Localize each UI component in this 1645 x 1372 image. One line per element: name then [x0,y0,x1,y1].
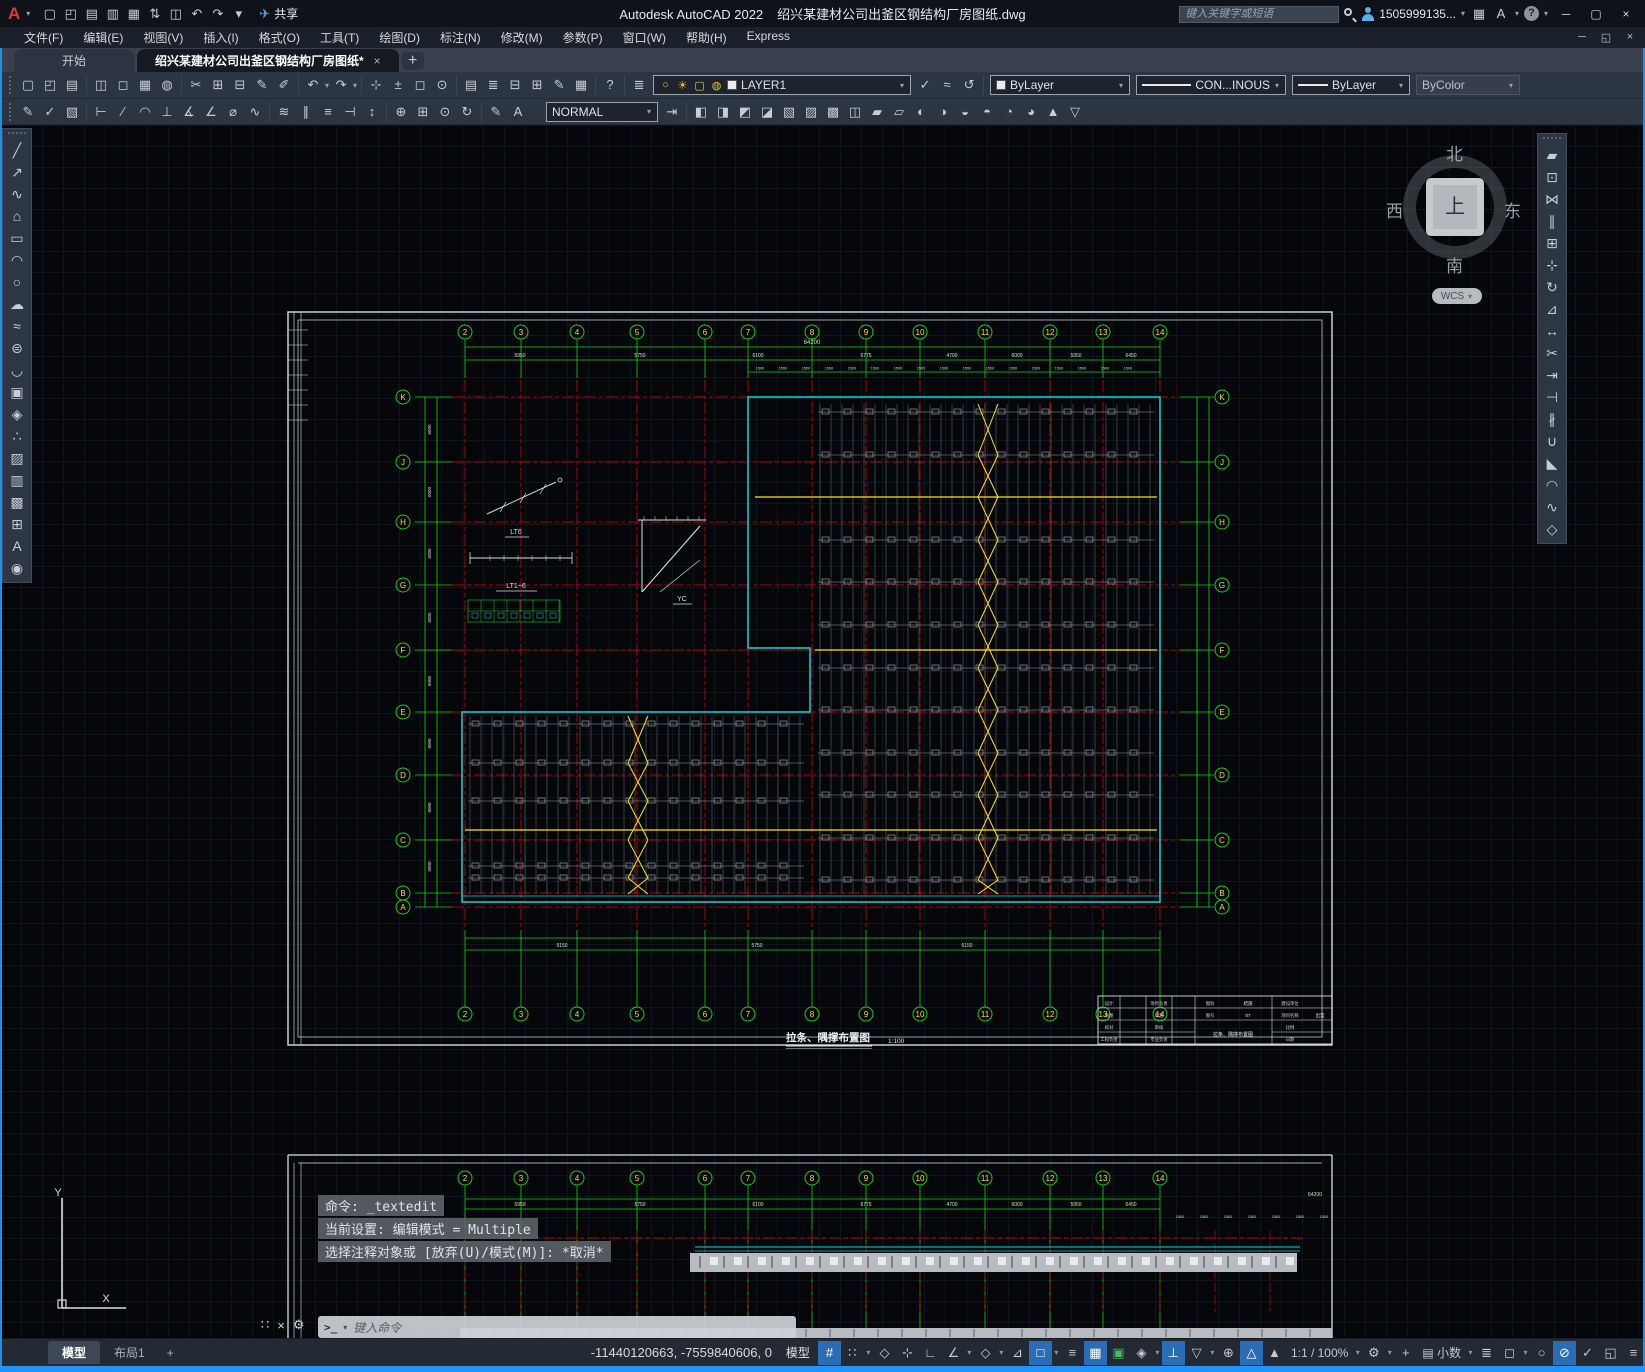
svg-text:4: 4 [575,328,580,337]
status-snap-caret-icon[interactable]: ▾ [864,1348,873,1357]
status-transparency-icon[interactable]: ▦ [1084,1341,1107,1365]
quick-calc-icon[interactable]: ▦ [570,75,592,95]
viewcube-west-label[interactable]: 西 [1386,197,1403,222]
layer-delete-icon[interactable]: ◔ [998,102,1020,122]
status-workspace-switching-caret-icon[interactable]: ▾ [1385,1348,1394,1357]
dim-arc-length-icon[interactable]: ◠ [134,102,156,122]
publish-icon[interactable]: ▦ [134,75,156,95]
break-at-point-icon[interactable]: ⊣ [1539,386,1565,408]
dim-quick-icon[interactable]: ≋ [273,102,295,122]
svg-text:3: 3 [519,328,524,337]
command-settings-icon[interactable]: ⚙ [293,1317,305,1333]
tab-start[interactable]: 开始 [14,49,134,72]
lineweight-sample [1298,84,1328,86]
tab-close-icon[interactable]: × [374,54,381,68]
tab-layout1[interactable]: 布局1 [100,1341,159,1364]
point-icon[interactable]: ∴ [4,425,30,447]
properties-icon[interactable]: ▤ [460,75,482,95]
titlebar: A▾ ▢◰▤▥▦⇅◫↶↷▾ ✈共享 Autodesk AutoCAD 2022绍… [0,0,1645,27]
search-box[interactable] [1179,4,1339,23]
svg-text:1500: 1500 [917,367,925,371]
svg-text:14: 14 [1156,328,1165,337]
status-object-snap-caret-icon[interactable]: ▾ [1052,1348,1061,1357]
plot-preview-icon[interactable]: ◻ [112,75,134,95]
change-to-current-layer-icon[interactable]: ◪ [756,102,778,122]
save-as-icon[interactable]: ▥ [103,4,122,24]
dim-adjust-icon[interactable]: ↕ [361,102,383,122]
svg-text:13: 13 [1099,1010,1108,1019]
plot-icon[interactable]: ◫ [90,75,112,95]
dim-jogged-icon[interactable]: ∿ [244,102,266,122]
dim-baseline-icon[interactable]: ≡ [317,102,339,122]
svg-text:4: 4 [575,1174,580,1183]
svg-text:A: A [400,903,406,912]
dropdown-caret-icon[interactable]: ▾ [352,81,358,90]
layer-lock-icon[interactable]: ◍ [710,79,723,92]
redo-icon[interactable]: ↷ [330,75,352,95]
dim-aligned-icon[interactable]: ∕ [112,102,134,122]
circle-icon[interactable]: ○ [4,271,30,293]
layer-up-icon[interactable]: ▲ [1042,102,1064,122]
layer-states-icon[interactable]: ≣ [628,75,650,95]
status-gizmo-icon[interactable]: ⊕ [1217,1341,1240,1365]
hatch-icon[interactable]: ▨ [4,447,30,469]
svg-text:F: F [1220,646,1225,655]
save-icon[interactable]: ▤ [61,75,83,95]
match-properties-icon[interactable]: ✎ [251,75,273,95]
sheet-set-manager-icon[interactable]: ⊞ [526,75,548,95]
controls-layer-label: LAYER1 [741,78,786,92]
status-workspace-switching-icon[interactable]: ⚙ [1362,1341,1385,1365]
add-layout-button[interactable]: + [159,1343,182,1363]
layer-frame-icon[interactable]: ▢ [693,79,706,92]
ellipse-arc-icon[interactable]: ◡ [4,359,30,381]
block-editor-icon[interactable]: ✐ [273,75,295,95]
autodesk-caret-icon[interactable]: ▾ [1514,9,1520,18]
svg-text:项目负责: 项目负责 [1150,1000,1168,1007]
revision-cloud-icon[interactable]: ☁ [4,293,30,315]
drawing-content: 6420059505750610067754700600059506450150… [0,125,1645,1338]
status-customization-menu-icon[interactable]: ≡ [1622,1341,1645,1365]
make-object-layer-current-icon[interactable]: ◧ [690,102,712,122]
layer-lock2-icon[interactable]: ◐ [910,102,932,122]
separator [269,102,270,122]
table-icon[interactable]: ⊞ [4,513,30,535]
dim-radius-icon[interactable]: ∡ [178,102,200,122]
status-annotation-scale-caret-icon[interactable]: ▾ [1353,1348,1362,1357]
svg-text:14: 14 [1156,1174,1165,1183]
plot-style-dropdown[interactable]: ByColor▾ [1416,75,1520,95]
array-icon[interactable]: ⊞ [1539,232,1565,254]
viewcube-north-label[interactable]: 北 [1446,140,1463,165]
status-dynamic-ucs-icon[interactable]: ⊥ [1162,1341,1185,1365]
doc-restore-button[interactable]: ◱ [1595,31,1617,44]
logo-caret-icon[interactable]: ▾ [25,9,31,18]
fillet-icon[interactable]: ◠ [1539,474,1565,496]
line-icon[interactable]: ╱ [4,139,30,161]
svg-text:K: K [400,393,406,402]
svg-text:10: 10 [916,1010,925,1019]
autocad-logo-icon[interactable]: A [6,4,22,24]
layer-unisolate-icon[interactable]: ▨ [800,102,822,122]
menu-item-7[interactable]: 标注(N) [430,29,491,46]
status-dynamic-input-icon[interactable]: ⊹ [896,1341,919,1365]
tool-palettes-icon[interactable]: ⊟ [504,75,526,95]
layer-properties-icon[interactable]: ≣ [482,75,504,95]
svg-text:审定: 审定 [1155,1012,1164,1019]
edit-text-icon[interactable]: ✎ [17,102,39,122]
new-tab-button[interactable]: + [402,52,424,70]
svg-text:D: D [400,771,406,780]
status-polar-tracking-caret-icon[interactable]: ▾ [965,1348,974,1357]
search-icon[interactable] [1343,7,1357,21]
menu-item-2[interactable]: 视图(V) [133,29,193,46]
app-store-icon[interactable]: ▦ [1470,6,1488,22]
menu-item-0[interactable]: 文件(F) [14,29,73,46]
minimize-button[interactable]: ─ [1553,7,1579,21]
share-button[interactable]: ✈共享 [259,5,298,22]
layer-dropdown[interactable]: ○☀▢◍LAYER1▾ [653,75,911,95]
ellipse-icon[interactable]: ⊜ [4,337,30,359]
extend-icon[interactable]: ⇥ [1539,364,1565,386]
status-annotation-scale[interactable]: 1:1 / 100% [1286,1341,1353,1365]
dim-center-mark-icon[interactable]: ⊕ [390,102,412,122]
pan-icon[interactable]: ⊹ [365,75,387,95]
layer-off-icon[interactable]: ▰ [866,102,888,122]
status-3d-object-snap-icon[interactable]: ◈ [1130,1341,1153,1365]
status-polar-tracking-icon[interactable]: ∠ [942,1341,965,1365]
layer-down-icon[interactable]: ▽ [1064,102,1086,122]
copy-icon[interactable]: ⊡ [1539,166,1565,188]
window-edge-left [0,48,2,1366]
zoom-window-icon[interactable]: ◻ [409,75,431,95]
chamfer-icon[interactable]: ◣ [1539,452,1565,474]
new-file-icon[interactable]: ▢ [40,4,59,24]
menu-item-6[interactable]: 绘图(D) [369,29,430,46]
layer-walk-icon[interactable]: ◨ [712,102,734,122]
construction-line-icon[interactable]: ↗ [4,161,30,183]
svg-text:B: B [400,889,405,898]
svg-text:8: 8 [810,328,815,337]
zoom-realtime-icon[interactable]: ± [387,75,409,95]
doc-close-button[interactable]: × [1619,31,1641,44]
dim-update-icon[interactable]: ↻ [456,102,478,122]
explode-icon[interactable]: ◇ [1539,518,1565,540]
open-icon[interactable]: ◰ [39,75,61,95]
menu-item-1[interactable]: 编辑(E) [73,29,133,46]
separator [86,102,87,122]
insert-block-icon[interactable]: ▣ [4,381,30,403]
toolbar-grip[interactable] [8,132,26,136]
status-isolate-objects-icon[interactable]: ○ [1530,1341,1553,1365]
new-icon[interactable]: ▢ [17,75,39,95]
viewcube-east-label[interactable]: 东 [1504,197,1521,222]
menu-item-5[interactable]: 工具(T) [310,29,369,46]
svg-text:拉条、隅撑布置图: 拉条、隅撑布置图 [1213,1031,1253,1038]
dim-break-icon[interactable]: ⊣ [339,102,361,122]
autodesk-icon[interactable]: A [1492,6,1510,21]
dropdown-caret-icon[interactable]: ▾ [1398,81,1404,90]
undo-icon[interactable]: ↶ [187,4,206,24]
create-block-icon[interactable]: ◈ [4,403,30,425]
layer-on-icon[interactable]: ○ [659,79,672,91]
scale-icon[interactable]: ⊿ [1539,298,1565,320]
dim-angular-icon[interactable]: ∠ [200,102,222,122]
arc-icon[interactable]: ◠ [4,249,30,271]
stretch-icon[interactable]: ↔ [1539,320,1565,342]
status-object-snap-icon[interactable]: □ [1029,1341,1052,1365]
layer-combine-icon[interactable]: ◕ [1020,102,1042,122]
status-object-snap-tracking-icon[interactable]: ⊿ [1006,1341,1029,1365]
svg-text:1500: 1500 [1078,367,1086,371]
account-icon[interactable] [1361,7,1375,21]
zoom-previous-icon[interactable]: ⊙ [431,75,453,95]
status-units-caret-icon[interactable]: ▾ [1466,1348,1475,1357]
menu-item-3[interactable]: 插入(I) [193,29,248,46]
menu-item-11[interactable]: 帮助(H) [676,29,737,46]
svg-text:LT6: LT6 [510,529,522,536]
tab-model[interactable]: 模型 [48,1341,100,1364]
color-dropdown[interactable]: ByLayer▾ [990,75,1130,95]
paste-icon[interactable]: ⊟ [229,75,251,95]
help-icon[interactable]: ? [599,75,621,95]
status-isometric-drafting-icon[interactable]: ◇ [974,1341,997,1365]
dropdown-caret-icon[interactable]: ▾ [899,81,905,90]
spell-check-icon[interactable]: ✓ [39,102,61,122]
status-lock-ui-caret-icon[interactable]: ▾ [1521,1348,1530,1357]
account-name[interactable]: 1505999135... [1379,7,1456,21]
status-isolate-icon[interactable]: + [1394,1341,1417,1365]
document-window-controls: ─ ◱ × [1571,31,1645,44]
layer-unlock-icon[interactable]: ◑ [932,102,954,122]
separator [361,75,362,95]
svg-text:6450: 6450 [1125,1202,1136,1208]
dim-diameter-icon[interactable]: ⌀ [222,102,244,122]
layer-color-swatch [727,80,737,90]
status-clean-screen-icon[interactable]: ◱ [1599,1341,1622,1365]
status-selection-filtering-icon[interactable]: ▽ [1185,1341,1208,1365]
gradient-icon[interactable]: ▥ [4,469,30,491]
autocad-window: A▾ ▢◰▤▥▦⇅◫↶↷▾ ✈共享 Autodesk AutoCAD 2022绍… [0,0,1645,1372]
svg-text:5750: 5750 [634,1202,645,1208]
dim-continue-icon[interactable]: ∥ [295,102,317,122]
cut-icon[interactable]: ✂ [185,75,207,95]
status-hardware-acceleration-icon[interactable]: ⊘ [1553,1341,1576,1365]
dropdown-caret-icon[interactable]: ▾ [646,107,652,116]
svg-text:12: 12 [1046,328,1055,337]
svg-text:D: D [1219,771,1225,780]
region-icon[interactable]: ▩ [4,491,30,513]
svg-text:1500: 1500 [986,367,994,371]
mirror-icon[interactable]: ⋈ [1539,188,1565,210]
separator [86,75,87,95]
layer-freeze-icon[interactable]: ◫ [844,102,866,122]
status-selection-filtering-caret-icon[interactable]: ▾ [1208,1348,1217,1357]
dim-ordinate-icon[interactable]: ⊥ [156,102,178,122]
polyline-icon[interactable]: ∿ [4,183,30,205]
etransmit-icon[interactable]: ◍ [156,75,178,95]
dim-edit-icon[interactable]: ✎ [485,102,507,122]
dim-inspect-icon[interactable]: ⊙ [434,102,456,122]
erase-icon[interactable]: ▰ [1539,144,1565,166]
viewcube-face[interactable]: 上 [1426,178,1484,236]
status-isometric-drafting-caret-icon[interactable]: ▾ [997,1348,1006,1357]
model-space-button[interactable]: 模型 [786,1344,810,1361]
svg-text:6000: 6000 [427,861,432,872]
close-button[interactable]: × [1613,7,1639,21]
join-icon[interactable]: ∪ [1539,430,1565,452]
svg-text:1500: 1500 [825,367,833,371]
open-file-icon[interactable]: ◰ [61,4,80,24]
svg-text:7: 7 [746,1010,751,1019]
command-input[interactable]: >_ ▾ 键入命令 [318,1316,796,1338]
svg-text:3: 3 [519,1010,524,1019]
tab-document[interactable]: 绍兴某建材公司出釜区钢结构厂房图纸* × [137,49,399,72]
status-trusted-autodesk-icon[interactable]: ✓ [1576,1341,1599,1365]
svg-text:1500: 1500 [1124,367,1132,371]
save-icon[interactable]: ▤ [82,4,101,24]
svg-text:5950: 5950 [514,353,525,359]
share-label: 共享 [274,5,298,22]
controls-color-label: ByLayer [1010,78,1054,92]
svg-text:1500: 1500 [1176,1215,1184,1219]
batch-plot-icon[interactable]: ▦ [124,4,143,24]
layer-match-icon[interactable]: ◩ [734,102,756,122]
linetype-dropdown[interactable]: CON...INOUS▾ [1136,75,1286,95]
search-input[interactable] [1179,6,1339,23]
command-line-0: 命令: _textedit [318,1195,444,1216]
polygon-icon[interactable]: ⌂ [4,205,30,227]
help-caret-icon[interactable]: ▾ [1543,9,1549,18]
dim-text-edit-icon[interactable]: A [507,102,529,122]
viewcube-south-label[interactable]: 南 [1446,252,1463,277]
svg-text:1500: 1500 [1320,1215,1328,1219]
tolerance-icon[interactable]: ⊞ [412,102,434,122]
svg-text:14: 14 [1156,1010,1165,1019]
svg-text:X: X [102,1293,110,1305]
transfer-icon[interactable]: ⇅ [145,4,164,24]
status-infer-constraints-icon[interactable]: ◇ [873,1341,896,1365]
layer-previous-icon[interactable]: ↺ [958,75,980,95]
separator [298,75,299,95]
command-caret-icon[interactable]: ▾ [342,1323,348,1332]
make-current-icon[interactable]: ✓ [914,75,936,95]
separator [983,75,984,95]
status-lineweight-display-icon[interactable]: ≡ [1061,1341,1084,1365]
svg-text:图号: 图号 [1206,1013,1215,1019]
break-icon[interactable]: ∦ [1539,408,1565,430]
dropdown-caret-icon[interactable]: ▾ [1118,81,1124,90]
status-selection-cycling[interactable]: ▣ [1107,1341,1130,1365]
account-caret-icon[interactable]: ▾ [1460,9,1466,18]
copy-clip-icon[interactable]: ⊞ [207,75,229,95]
status-ortho-icon[interactable]: ∟ [919,1341,942,1365]
redo-icon[interactable]: ↷ [208,4,227,24]
svg-text:5750: 5750 [751,943,762,949]
maximize-button[interactable]: ▢ [1583,7,1609,21]
offset-icon[interactable]: ∥ [1539,210,1565,232]
layer-on-all-icon[interactable]: ▱ [888,102,910,122]
status-toggles: #∷▾◇⊹∟∠▾◇▾⊿□▾≡▦▣◈▾⊥▽▾⊕△▲1:1 / 100%▾⚙▾+▤ … [818,1339,1645,1367]
dropdown-caret-icon[interactable]: ▾ [1508,81,1514,90]
status-units[interactable]: ▤ 小数 [1417,1341,1466,1365]
copy-to-new-layer-icon[interactable]: ▩ [822,102,844,122]
svg-text:2: 2 [463,328,468,337]
command-close-icon[interactable]: × [277,1318,285,1333]
svg-text:7: 7 [746,1174,751,1183]
svg-text:6000: 6000 [427,612,432,623]
status-grid-icon[interactable]: # [818,1341,841,1365]
status-annotation-visibility-icon[interactable]: △ [1240,1341,1263,1365]
dimension-toolbar: ✎✓▧⊢∕◠⊥∡∠⌀∿≋∥≡⊣↕⊕⊞⊙↻✎ANORMAL▾⇥◧◨◩◪▧▨▩◫▰▱… [0,99,1645,125]
layer-thaw-all-icon[interactable]: ◒ [954,102,976,122]
menu-item-9[interactable]: 参数(P) [553,29,613,46]
menu-item-12[interactable]: Express [737,29,800,46]
svg-text:6: 6 [703,1174,708,1183]
svg-text:1500: 1500 [1200,1215,1208,1219]
toolbar-grip[interactable] [1543,137,1561,141]
dim-space-icon[interactable]: ⇥ [661,102,683,122]
match-layer-icon[interactable]: ≈ [936,75,958,95]
svg-text:J: J [401,458,405,467]
status-autoscale-icon[interactable]: ▲ [1263,1341,1286,1365]
wcs-dropdown[interactable]: WCS▾ [1432,288,1482,304]
layer-sun-icon[interactable]: ☀ [676,79,689,92]
status-3d-object-snap-caret-icon[interactable]: ▾ [1153,1348,1162,1357]
svg-text:1500: 1500 [871,367,879,371]
doc-minimize-button[interactable]: ─ [1571,31,1593,44]
svg-text:6000: 6000 [427,675,432,686]
customize-icon[interactable]: ▾ [229,4,248,24]
undo-icon[interactable]: ↶ [302,75,324,95]
dim-style-dropdown[interactable]: NORMAL▾ [546,102,658,122]
menu-item-8[interactable]: 修改(M) [491,29,553,46]
trim-icon[interactable]: ✂ [1539,342,1565,364]
status-snap-icon[interactable]: ∷ [841,1341,864,1365]
mtext-icon[interactable]: A [4,535,30,557]
svg-text:6100: 6100 [752,1202,763,1208]
move-icon[interactable]: ⊹ [1539,254,1565,276]
drawing-canvas[interactable]: 6420059505750610067754700600059506450150… [0,125,1645,1338]
dim-linear-icon[interactable]: ⊢ [90,102,112,122]
status-lock-ui-icon[interactable]: ◻ [1498,1341,1521,1365]
draw-toolbar: ╱↗∿⌂▭◠○☁≈⊜◡▣◈∴▨▥▩⊞A◉ [2,128,32,583]
rectangle-icon[interactable]: ▭ [4,227,30,249]
viewcube[interactable]: 北 南 西 东 上 [1388,142,1528,292]
layer-merge-icon[interactable]: ◓ [976,102,998,122]
annotation-monitor-icon[interactable]: ▧ [61,102,83,122]
spline-icon[interactable]: ≈ [4,315,30,337]
rotate-icon[interactable]: ↻ [1539,276,1565,298]
blend-curves-icon[interactable]: ∿ [1539,496,1565,518]
dropdown-caret-icon[interactable]: ▾ [1274,81,1280,90]
menu-item-10[interactable]: 窗口(W) [613,29,676,46]
print-icon[interactable]: ◫ [166,4,185,24]
status-quick-properties-icon[interactable]: ≣ [1475,1341,1498,1365]
command-grip-icon[interactable]: ∷ [261,1317,269,1333]
layer-isolate-icon[interactable]: ▧ [778,102,800,122]
viewcube-top-label[interactable]: 上 [1433,185,1477,229]
lineweight-dropdown[interactable]: ByLayer▾ [1292,75,1410,95]
svg-text:11: 11 [981,328,990,337]
svg-text:1500: 1500 [963,367,971,371]
help-icon[interactable]: ? [1524,6,1539,21]
point-style-icon[interactable]: ◉ [4,557,30,579]
markup-icon[interactable]: ✎ [548,75,570,95]
menu-item-4[interactable]: 格式(O) [249,29,310,46]
svg-text:6000: 6000 [427,802,432,813]
svg-text:5950: 5950 [1070,353,1081,359]
